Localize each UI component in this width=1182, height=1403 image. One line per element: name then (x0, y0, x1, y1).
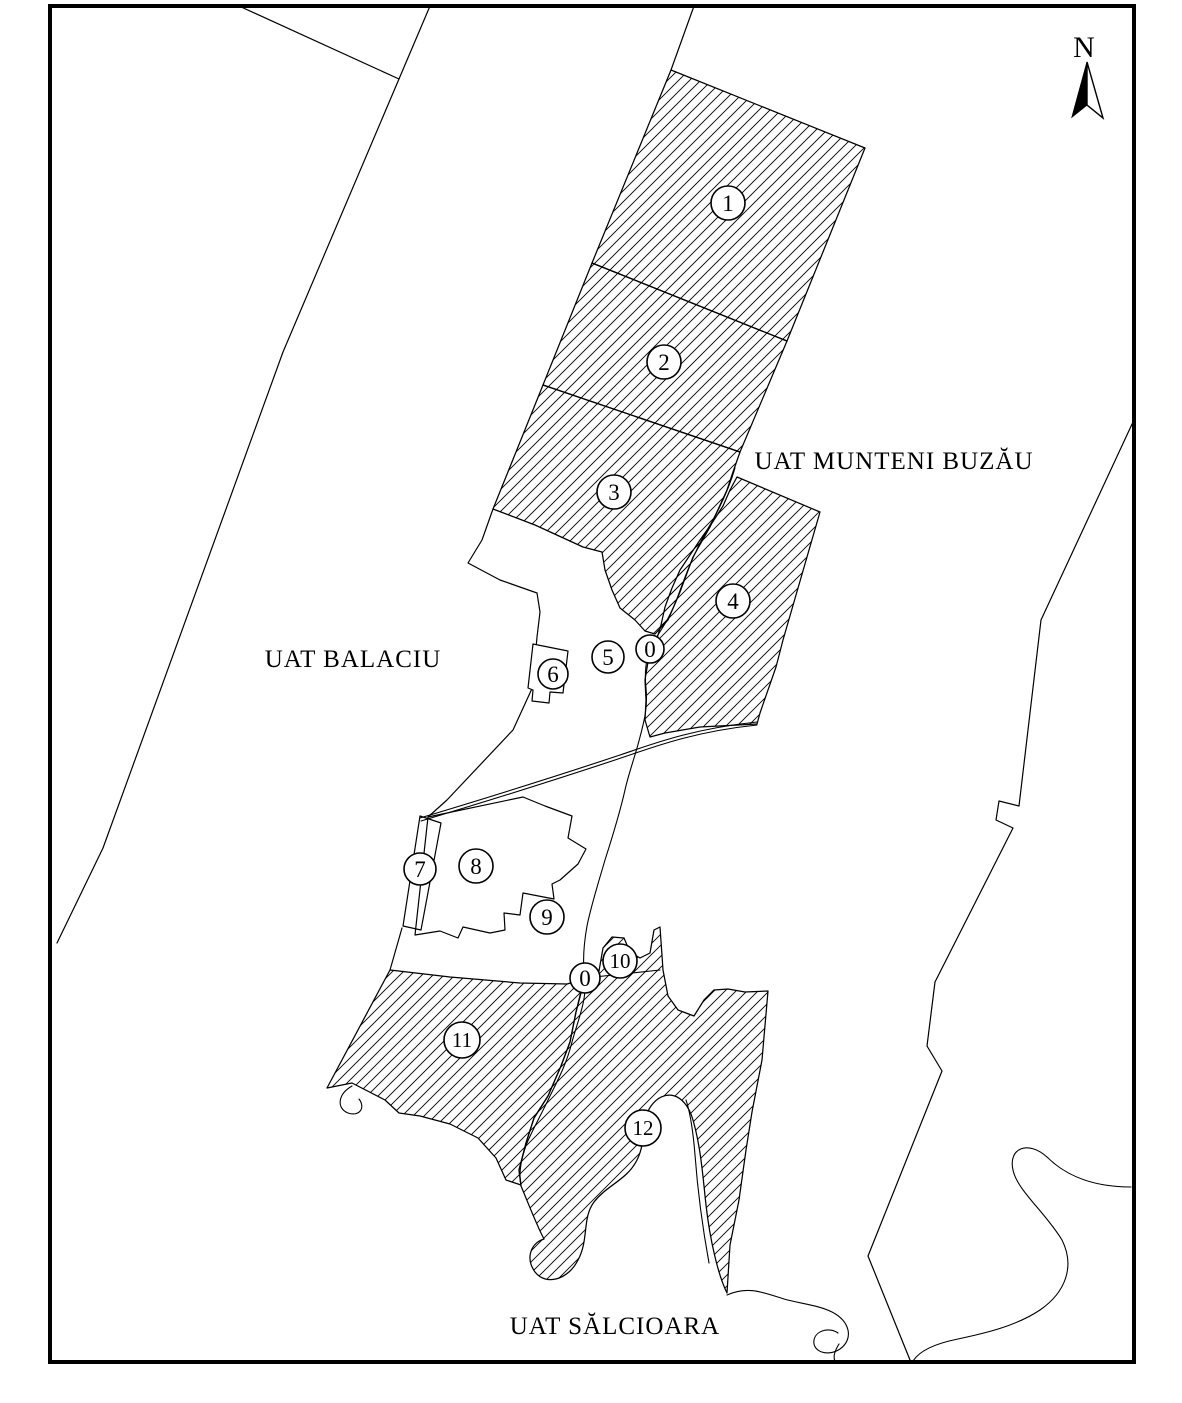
east-boundary-line (868, 422, 1133, 1360)
road-line-south (421, 725, 757, 821)
parcel-marker-number: 5 (602, 645, 614, 670)
cadastral-map: N UAT MUNTENI BUZĂUUAT BALACIUUAT SĂLCIO… (0, 0, 1182, 1403)
parcel-marker-number: 0 (579, 966, 591, 991)
parcel-marker-3: 3 (597, 475, 631, 509)
parcel-marker-5: 5 (592, 641, 624, 673)
west-boundary-line (57, 6, 430, 943)
meander-curl (340, 1086, 362, 1114)
river-southeast-line (913, 1148, 1131, 1361)
parcel-marker-number: 8 (470, 854, 482, 879)
parcel-marker-2: 2 (647, 345, 681, 379)
parcel-marker-number: 11 (452, 1028, 472, 1052)
north-boundary-line (671, 6, 694, 70)
northwest-boundary-line (239, 6, 399, 79)
parcel-marker-0: 0 (570, 963, 600, 993)
parcel-marker-12: 12 (625, 1110, 661, 1146)
north-arrow: N (1072, 31, 1103, 118)
parcel-marker-8: 8 (459, 849, 493, 883)
parcel-marker-number: 2 (658, 350, 670, 375)
balaciu-boundary-line (428, 509, 540, 817)
parcel-marker-4: 4 (716, 584, 750, 618)
parcel-marker-number: 1 (722, 191, 734, 216)
parcel-marker-10: 10 (603, 944, 637, 978)
north-arrow-left-half (1072, 62, 1087, 117)
uat-salcioara-label: UAT SĂLCIOARA (510, 1312, 720, 1340)
north-arrow-letter: N (1073, 31, 1095, 64)
river-south-line (727, 1290, 848, 1352)
north-arrow-right-half (1087, 62, 1103, 118)
parcel-marker-number: 6 (547, 662, 559, 687)
parcel-marker-number: 7 (414, 857, 426, 882)
parcel-marker-7: 7 (404, 853, 436, 885)
road-line-north (420, 722, 757, 818)
parcel-marker-number: 12 (633, 1116, 654, 1140)
parcel-marker-number: 9 (541, 905, 553, 930)
uat-munteni-buzau-label: UAT MUNTENI BUZĂU (754, 447, 1033, 475)
parcel-marker-number: 0 (644, 637, 656, 662)
parcel-marker-number: 3 (608, 480, 620, 505)
parcel-marker-1: 1 (711, 186, 745, 220)
parcel-marker-0: 0 (636, 635, 664, 663)
parcel-marker-9: 9 (530, 900, 564, 934)
river-south-outlet (834, 1344, 839, 1361)
parcel-marker-number: 10 (610, 949, 631, 973)
uat-balaciu-label: UAT BALACIU (265, 646, 442, 673)
balaciu-boundary-line-south (390, 928, 402, 970)
parcel-marker-11: 11 (444, 1022, 480, 1058)
parcel-marker-number: 4 (727, 589, 739, 614)
parcel-marker-6: 6 (538, 659, 568, 689)
